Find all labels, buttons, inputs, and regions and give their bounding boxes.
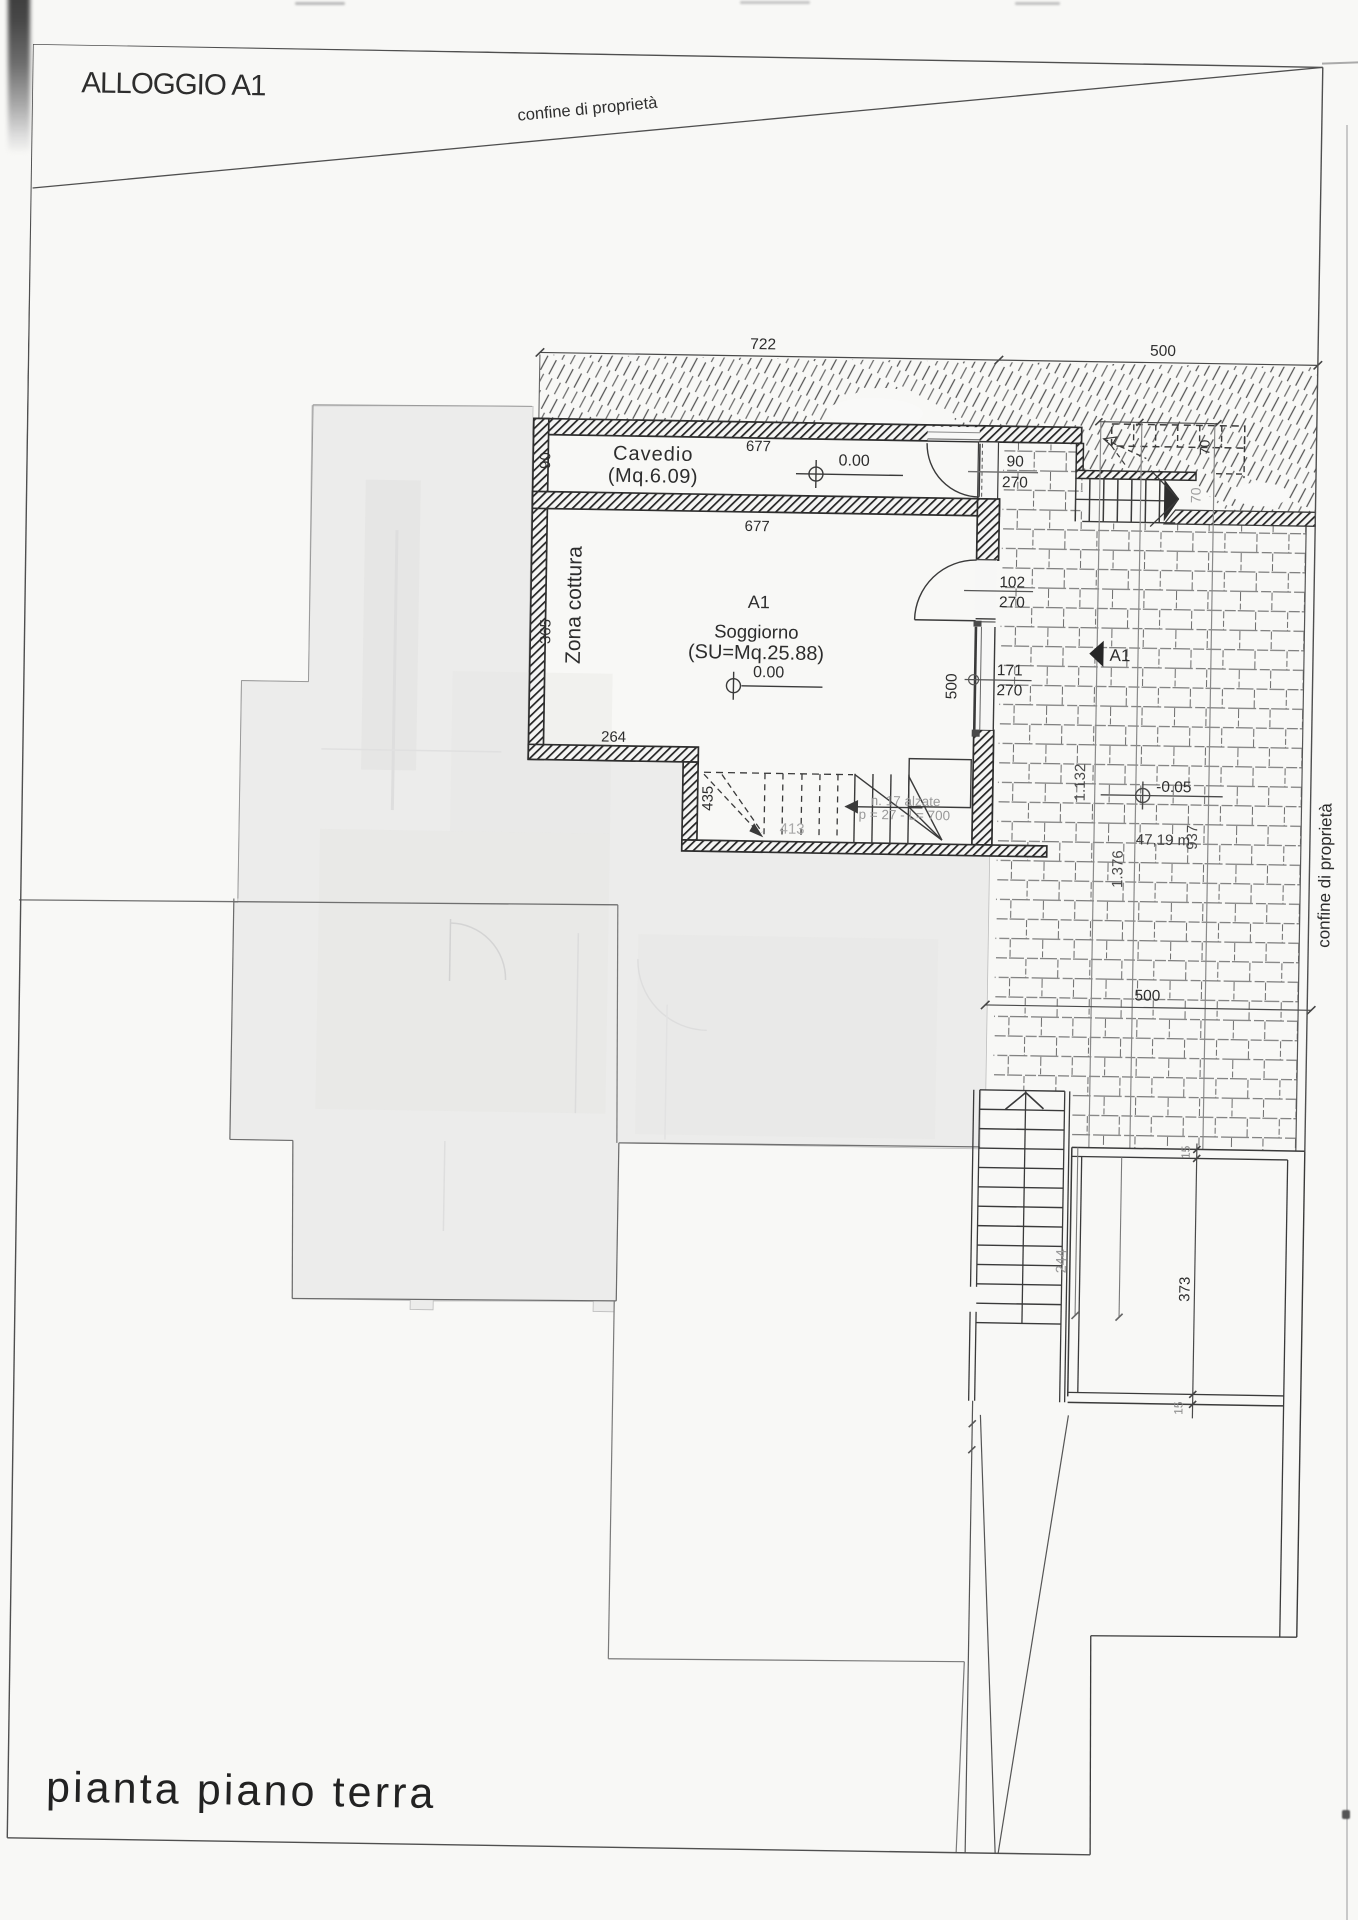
svg-text:confine di proprietà: confine di proprietà bbox=[517, 94, 659, 125]
svg-text:435: 435 bbox=[699, 786, 716, 811]
svg-text:171: 171 bbox=[997, 662, 1023, 679]
svg-text:270: 270 bbox=[1002, 474, 1029, 491]
svg-text:500: 500 bbox=[1134, 987, 1161, 1004]
svg-text:270: 270 bbox=[999, 594, 1026, 611]
svg-text:70: 70 bbox=[1188, 487, 1204, 503]
svg-text:413: 413 bbox=[779, 820, 804, 837]
svg-text:15: 15 bbox=[1179, 1145, 1193, 1159]
svg-text:365: 365 bbox=[537, 619, 554, 644]
svg-text:15: 15 bbox=[1171, 1401, 1185, 1415]
svg-text:90: 90 bbox=[1006, 453, 1024, 470]
svg-text:373: 373 bbox=[1176, 1277, 1193, 1302]
svg-text:1.376: 1.376 bbox=[1109, 850, 1127, 888]
svg-text:102: 102 bbox=[999, 574, 1025, 591]
svg-text:264: 264 bbox=[601, 729, 626, 746]
svg-text:244: 244 bbox=[1054, 1249, 1070, 1273]
svg-text:A1: A1 bbox=[1109, 646, 1130, 665]
svg-text:1.132: 1.132 bbox=[1072, 764, 1090, 802]
svg-text:722: 722 bbox=[750, 336, 776, 353]
svg-text:A1: A1 bbox=[748, 592, 770, 612]
svg-text:90: 90 bbox=[537, 452, 554, 469]
svg-text:70: 70 bbox=[1196, 439, 1212, 455]
svg-text:-0.05: -0.05 bbox=[1156, 779, 1192, 797]
svg-text:ALLOGGIO A1: ALLOGGIO A1 bbox=[81, 66, 266, 102]
svg-text:p = 27 - L= 700: p = 27 - L= 700 bbox=[858, 807, 950, 824]
svg-text:47,19 m: 47,19 m bbox=[1136, 831, 1190, 849]
svg-text:0.00: 0.00 bbox=[753, 664, 785, 682]
svg-text:pianta piano terra: pianta piano terra bbox=[46, 1763, 437, 1817]
svg-text:confine di proprietà: confine di proprietà bbox=[1314, 803, 1335, 948]
svg-text:677: 677 bbox=[746, 438, 771, 455]
svg-text:Cavedio: Cavedio bbox=[613, 443, 694, 466]
svg-text:Soggiorno: Soggiorno bbox=[714, 620, 799, 642]
svg-text:270: 270 bbox=[996, 682, 1023, 699]
svg-text:(SU=Mq.25.88): (SU=Mq.25.88) bbox=[688, 641, 825, 665]
svg-text:0.00: 0.00 bbox=[838, 452, 870, 470]
svg-text:(Mq.6.09): (Mq.6.09) bbox=[608, 465, 698, 488]
svg-text:500: 500 bbox=[1150, 343, 1177, 360]
svg-text:Zona cottura: Zona cottura bbox=[562, 546, 587, 665]
svg-text:500: 500 bbox=[943, 673, 960, 700]
svg-text:677: 677 bbox=[744, 518, 769, 535]
